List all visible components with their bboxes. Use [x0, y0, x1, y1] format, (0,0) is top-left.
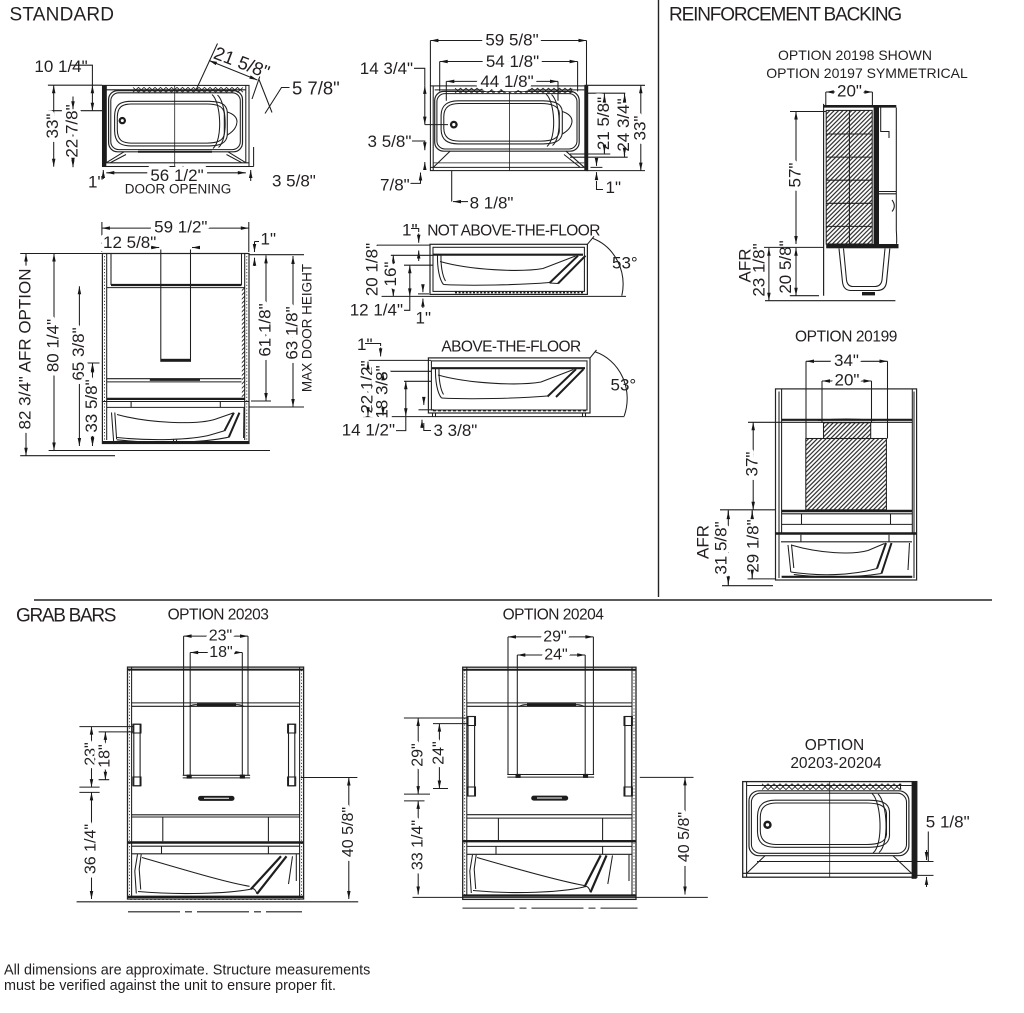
svg-text:29": 29" — [543, 628, 566, 645]
svg-text:AFR: AFR — [693, 525, 712, 559]
svg-text:57": 57" — [785, 163, 804, 188]
svg-text:54 1/8": 54 1/8" — [486, 52, 539, 71]
svg-text:STANDARD: STANDARD — [10, 5, 115, 26]
svg-text:GRAB BARS: GRAB BARS — [16, 606, 116, 627]
svg-text:1": 1" — [261, 230, 277, 249]
svg-text:1": 1" — [416, 309, 432, 328]
svg-text:8 1/8": 8 1/8" — [470, 193, 514, 212]
svg-text:29": 29" — [409, 743, 426, 766]
svg-text:59 5/8": 59 5/8" — [485, 31, 538, 50]
svg-text:40 5/8": 40 5/8" — [676, 812, 693, 862]
svg-text:All dimensions are approximate: All dimensions are approximate. Structur… — [4, 963, 370, 979]
svg-text:61 1/8": 61 1/8" — [255, 303, 274, 356]
svg-text:3 5/8": 3 5/8" — [368, 132, 412, 151]
svg-text:must be verified against the u: must be verified against the unit to ens… — [4, 978, 336, 994]
svg-text:33 1/4": 33 1/4" — [409, 820, 426, 870]
svg-text:REINFORCEMENT BACKING: REINFORCEMENT BACKING — [669, 5, 901, 26]
svg-text:33": 33" — [43, 114, 62, 139]
svg-text:18": 18" — [97, 744, 114, 767]
svg-text:40 5/8": 40 5/8" — [340, 807, 357, 857]
svg-text:65 3/8": 65 3/8" — [69, 327, 88, 380]
svg-text:44 1/8": 44 1/8" — [480, 72, 533, 91]
svg-text:OPTION 20204: OPTION 20204 — [503, 607, 605, 624]
svg-text:37": 37" — [743, 452, 762, 477]
svg-text:12 5/8": 12 5/8" — [103, 233, 156, 252]
svg-text:31 5/8": 31 5/8" — [711, 521, 730, 574]
svg-text:18": 18" — [209, 644, 232, 661]
svg-text:36 1/4": 36 1/4" — [83, 824, 100, 874]
svg-text:53°: 53° — [611, 376, 637, 395]
svg-text:20 1/8": 20 1/8" — [362, 243, 381, 296]
svg-text:22 7/8": 22 7/8" — [62, 104, 81, 157]
svg-text:5 1/8": 5 1/8" — [926, 813, 970, 832]
svg-text:20 5/8": 20 5/8" — [776, 240, 795, 293]
svg-text:24": 24" — [431, 741, 448, 764]
svg-text:3 5/8": 3 5/8" — [272, 172, 316, 191]
svg-text:20": 20" — [837, 82, 862, 101]
svg-text:21 5/8": 21 5/8" — [594, 97, 613, 150]
svg-text:14 1/2": 14 1/2" — [342, 421, 395, 440]
svg-text:OPTION 20203: OPTION 20203 — [168, 607, 269, 624]
svg-text:29 1/8": 29 1/8" — [743, 519, 762, 572]
svg-text:33": 33" — [630, 116, 649, 141]
svg-text:23 1/8": 23 1/8" — [749, 243, 768, 296]
svg-text:10 1/4": 10 1/4" — [34, 57, 87, 76]
svg-text:ABOVE-THE-FLOOR: ABOVE-THE-FLOOR — [441, 339, 581, 356]
svg-text:23": 23" — [209, 627, 232, 644]
svg-text:82 3/4" AFR OPTION: 82 3/4" AFR OPTION — [15, 269, 34, 430]
svg-text:7/8": 7/8" — [380, 176, 410, 195]
svg-text:3 3/8": 3 3/8" — [434, 421, 478, 440]
svg-text:34": 34" — [834, 351, 859, 370]
svg-text:5 7/8": 5 7/8" — [292, 78, 340, 99]
svg-text:OPTION 20198 SHOWN: OPTION 20198 SHOWN — [778, 47, 932, 63]
svg-text:1": 1" — [402, 221, 418, 240]
svg-text:OPTION 20199: OPTION 20199 — [795, 329, 897, 346]
svg-text:1": 1" — [357, 335, 373, 354]
svg-text:24": 24" — [544, 647, 567, 664]
svg-text:59 1/2": 59 1/2" — [154, 218, 207, 237]
svg-text:DOOR OPENING: DOOR OPENING — [125, 182, 232, 197]
svg-text:16": 16" — [381, 262, 400, 287]
svg-text:1": 1" — [606, 178, 622, 197]
svg-text:14 3/4": 14 3/4" — [360, 59, 413, 78]
svg-text:80 1/4": 80 1/4" — [43, 319, 62, 372]
svg-text:20203-20204: 20203-20204 — [790, 755, 882, 772]
svg-text:18 3/8": 18 3/8" — [372, 365, 391, 418]
svg-text:NOT ABOVE-THE-FLOOR: NOT ABOVE-THE-FLOOR — [427, 223, 600, 240]
svg-text:OPTION 20197 SYMMETRICAL: OPTION 20197 SYMMETRICAL — [766, 65, 968, 81]
svg-text:12 1/4": 12 1/4" — [350, 301, 403, 320]
svg-text:OPTION: OPTION — [805, 737, 864, 754]
svg-text:1": 1" — [88, 173, 104, 192]
svg-text:33 5/8": 33 5/8" — [82, 379, 101, 432]
svg-text:53°: 53° — [612, 254, 638, 273]
svg-text:20": 20" — [835, 371, 860, 390]
svg-text:MAX DOOR HEIGHT: MAX DOOR HEIGHT — [300, 264, 315, 392]
